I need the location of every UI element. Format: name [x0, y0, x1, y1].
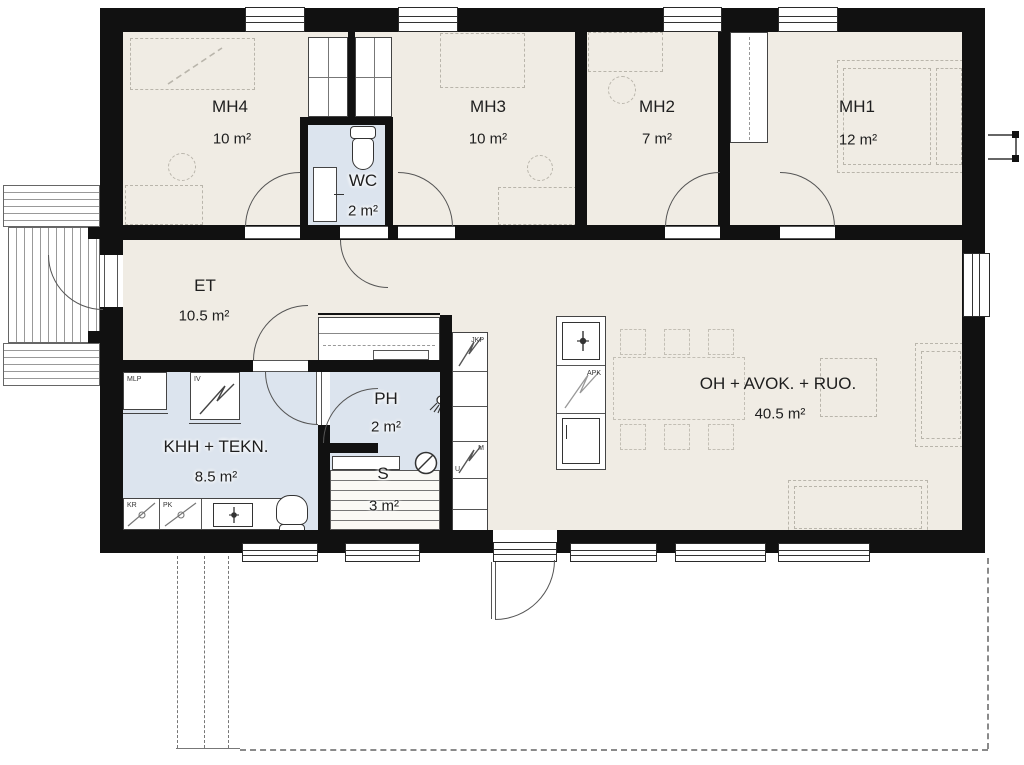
room-label-mh4: MH4 [212, 97, 248, 117]
room-label-mh1: MH1 [839, 97, 875, 117]
mh4-dresser-outline [125, 185, 203, 225]
patio-door-swing [495, 560, 555, 620]
kitchen-tall-cabinets: JKP M U [452, 332, 488, 540]
mh2-chair-outline [608, 76, 636, 104]
path-edge [176, 748, 240, 749]
sofa-inner [794, 486, 922, 529]
wc-wall-top [300, 117, 393, 125]
room-label-s: S [377, 464, 388, 484]
kitchen-counter [318, 317, 440, 362]
wc-wall-left [300, 117, 308, 225]
m-label: M [478, 445, 484, 452]
armchair-inner [921, 351, 961, 439]
room-label-khh: KHH + TEKN. [163, 437, 268, 457]
mh3-bed-outline [440, 33, 525, 88]
mh3-door [398, 226, 455, 239]
dining-chair-outline [708, 329, 734, 355]
wc-door [340, 226, 388, 239]
exterior-wall-top [100, 8, 985, 32]
khh-window [242, 543, 318, 562]
room-area-s: 3 m² [369, 498, 399, 515]
room-area-mh3: 10 m² [469, 131, 507, 148]
sauna-window [345, 543, 420, 562]
room-label-wc: WC [349, 171, 377, 191]
porch-deck-top [3, 185, 100, 227]
mh1-door [780, 226, 835, 239]
wc-sink [313, 167, 337, 222]
living-window-3 [778, 543, 870, 562]
room-area-mh2: 7 m² [642, 131, 672, 148]
pk-label: PK [163, 502, 172, 509]
room-area-ph: 2 m² [371, 419, 401, 436]
room-label-oh: OH + AVOK. + RUO. [700, 374, 857, 394]
wall-sauna-kitchen [440, 315, 452, 530]
path-line [177, 556, 178, 748]
dining-chair-outline [620, 424, 646, 450]
path-line [228, 556, 229, 748]
room-label-mh2: MH2 [639, 97, 675, 117]
ventilation-unit: IV [190, 372, 240, 420]
mh1-pillow-outline [936, 68, 962, 165]
mh4-desk-chair-mark [160, 42, 230, 88]
khh-door [253, 360, 308, 372]
exterior-fixture-end [1012, 131, 1019, 138]
room-area-mh4: 10 m² [213, 131, 251, 148]
mh1-closet [730, 32, 768, 143]
khh-toilet-bowl [276, 495, 308, 525]
terrace-outline-right [987, 558, 989, 749]
sauna-upper-bench [332, 456, 400, 470]
khh-sink-faucet-icon [226, 505, 242, 525]
heat-pump-unit: MLP [123, 372, 167, 410]
living-window-2 [675, 543, 766, 562]
wall-mh3-mh2 [575, 32, 587, 225]
mh3-window [398, 7, 458, 32]
mh3-dresser-outline [498, 187, 577, 225]
room-label-mh3: MH3 [470, 97, 506, 117]
ventilation-symbol [197, 381, 237, 417]
u-label: U [455, 466, 460, 473]
mh2-bed-outline [588, 32, 663, 72]
living-window-1 [570, 543, 657, 562]
mh2-door [665, 226, 720, 239]
room-area-mh1: 12 m² [839, 132, 877, 149]
room-label-ph: PH [374, 389, 398, 409]
jkp-label: JKP [471, 337, 484, 344]
apk-label: APK [587, 370, 601, 377]
path-line [204, 556, 205, 748]
dining-chair-outline [664, 424, 690, 450]
terrace-outline-bottom [240, 749, 988, 751]
dining-chair-outline [620, 329, 646, 355]
patio-door [493, 542, 557, 562]
sink-faucet-icon [575, 329, 591, 355]
mh1-side-window [963, 253, 990, 317]
room-area-wc: 2 m² [348, 203, 378, 220]
ph-wall-top [308, 360, 440, 372]
wall-ph-sauna [327, 443, 378, 453]
mh4-chair-outline [168, 153, 196, 181]
room-area-khh: 8.5 m² [195, 469, 238, 486]
mh4-window [245, 7, 305, 32]
dining-chair-outline [708, 424, 734, 450]
kitchen-island: APK [556, 316, 606, 470]
mh2-window [663, 7, 722, 32]
mh4-wardrobe [308, 37, 348, 117]
floor-plan: JKP M U APK MLP IV KR PK [0, 0, 1024, 765]
room-label-et: ET [194, 276, 216, 296]
mh3-chair-outline [527, 155, 553, 181]
room-area-oh: 40.5 m² [755, 406, 806, 423]
khh-wall-top [123, 360, 253, 372]
laundry-counter: KR PK [123, 498, 300, 530]
exterior-fixture-end [1012, 155, 1019, 162]
porch-deck-bottom [3, 343, 100, 386]
kr-label: KR [127, 502, 137, 509]
mlp-label: MLP [127, 376, 141, 383]
wc-wall-right [385, 117, 393, 225]
iv-label: IV [194, 376, 201, 383]
sauna-stove-icon [414, 451, 438, 475]
mh1-window [778, 7, 838, 32]
wardrobe-divider-wall [348, 32, 355, 117]
room-area-et: 10.5 m² [179, 308, 230, 325]
mh4-door [245, 226, 300, 239]
counter-back-line [318, 313, 440, 315]
wc-toilet-bowl [352, 138, 374, 170]
dining-chair-outline [664, 329, 690, 355]
mh3-wardrobe [355, 37, 392, 117]
